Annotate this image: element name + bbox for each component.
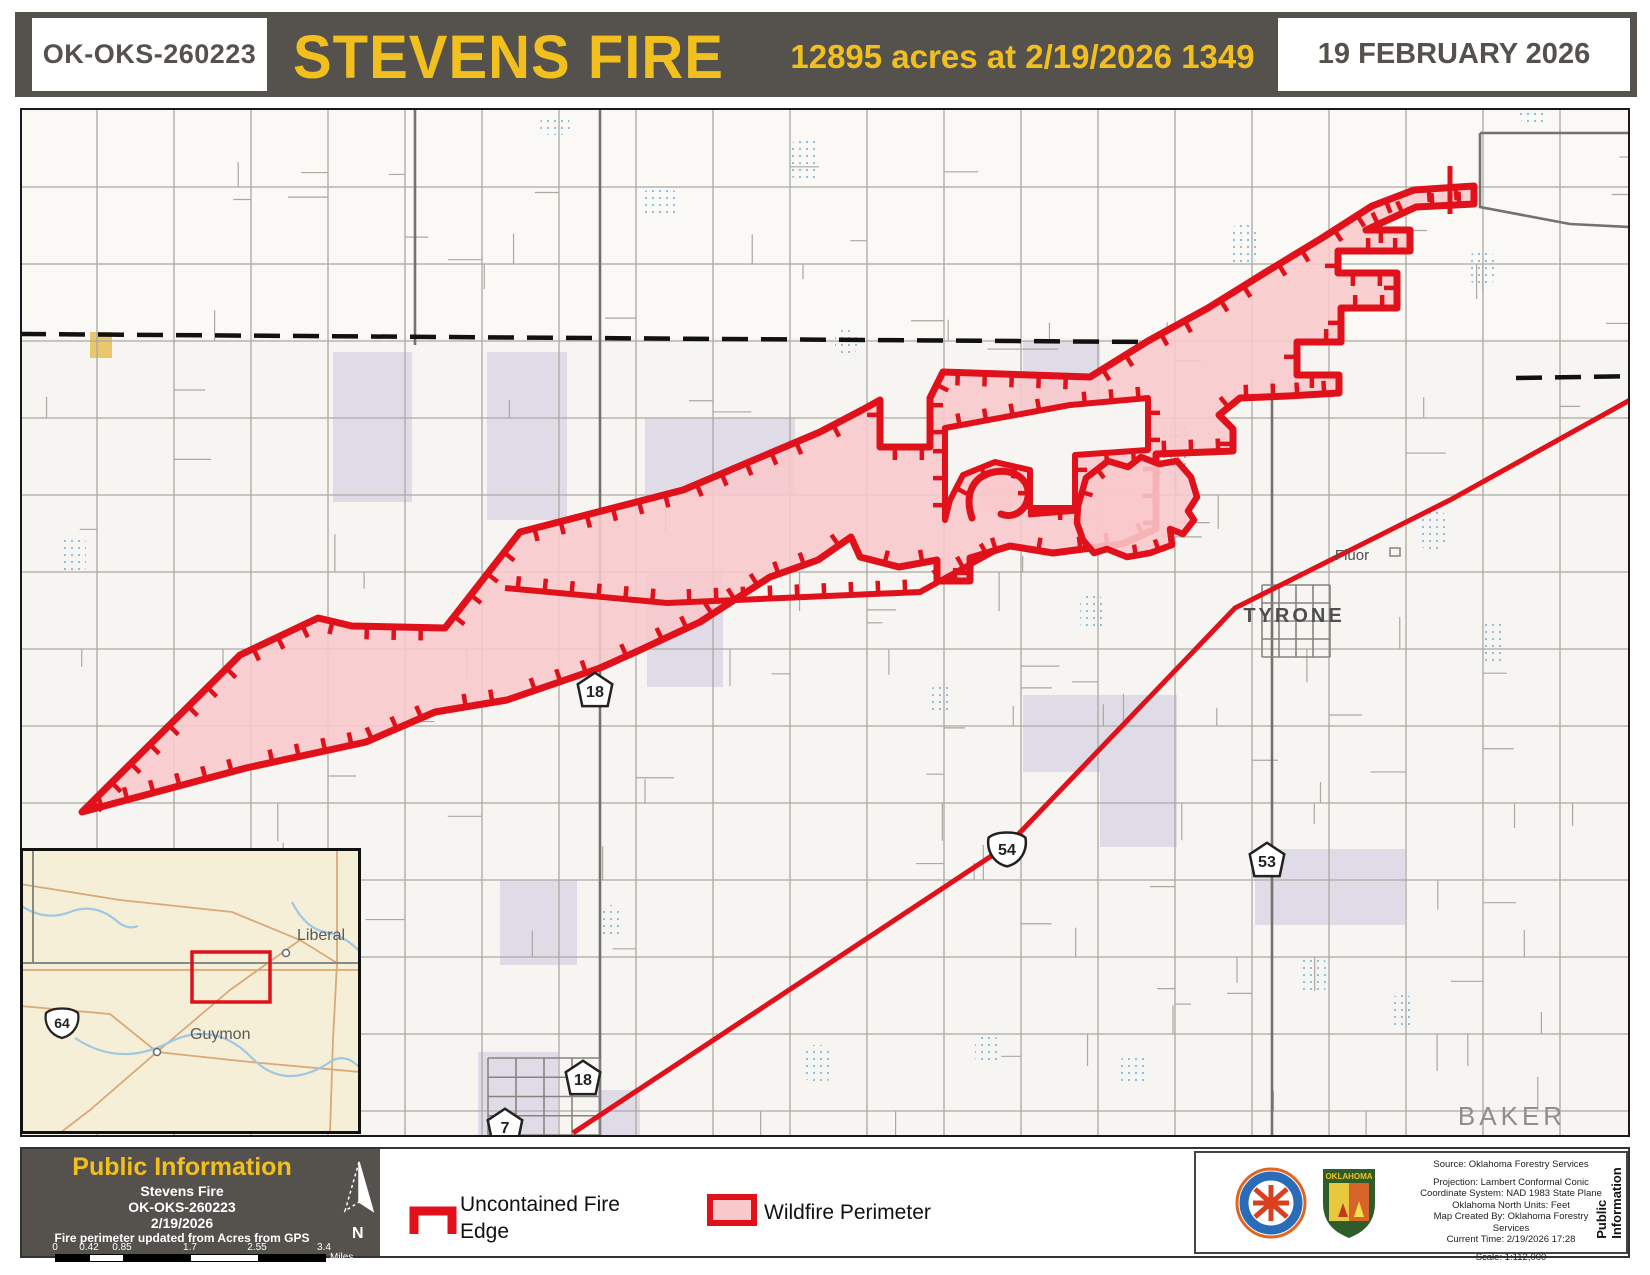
wildfire-perimeter-icon — [706, 1193, 758, 1227]
svg-text:OKLAHOMA: OKLAHOMA — [1325, 1172, 1372, 1181]
scale-segment — [56, 1255, 90, 1261]
inset-town-label: Liberal — [297, 927, 345, 944]
header-banner: OK-OKS-260223 STEVENS FIRE 12895 acres a… — [15, 12, 1637, 97]
inset-locator-map: LiberalGuymon64 — [20, 848, 361, 1134]
legend-item-perimeter: Wildfire Perimeter — [764, 1199, 931, 1226]
svg-text:7: 7 — [501, 1119, 510, 1135]
oklahoma-forestry-shield-icon: OKLAHOMA — [1323, 1169, 1375, 1238]
public-information-title: Public Information — [22, 1153, 342, 1182]
svg-text:TYRONE: TYRONE — [1243, 605, 1344, 627]
credits-line: Oklahoma North Units: Feet — [1416, 1200, 1606, 1212]
scale-segment — [191, 1255, 258, 1261]
public-information-vertical-label: Public Information — [1594, 1167, 1624, 1239]
svg-text:Fluor: Fluor — [1335, 547, 1369, 564]
fire-management-seal-icon — [1237, 1169, 1305, 1237]
inset-town-dot — [283, 950, 290, 957]
credits-panel: OKLAHOMA Source: Oklahoma Forestry Servi… — [1194, 1151, 1628, 1254]
scale-bar-units: Miles — [330, 1252, 353, 1263]
scale-label: 0 — [52, 1242, 58, 1253]
agency-logos: OKLAHOMA — [1226, 1159, 1386, 1249]
svg-text:53: 53 — [1258, 853, 1276, 871]
scale-segment — [123, 1255, 191, 1261]
wildfire-map-page: OK-OKS-260223 STEVENS FIRE 12895 acres a… — [0, 0, 1650, 1275]
north-arrow-label: N — [352, 1225, 364, 1243]
north-arrow-icon — [336, 1159, 382, 1229]
credits-line: Current Time: 2/19/2026 17:28 — [1416, 1234, 1606, 1246]
credits-text: Source: Oklahoma Forestry ServicesProjec… — [1416, 1159, 1606, 1263]
legend-bar: Public Information Stevens Fire OK-OKS-2… — [20, 1147, 1630, 1258]
scale-label: 3.4 — [317, 1242, 331, 1253]
legend-date: 2/19/2026 — [22, 1215, 342, 1231]
fire-hook-fill — [979, 476, 1017, 514]
map-date-box: 19 FEBRUARY 2026 — [1278, 18, 1630, 91]
svg-text:54: 54 — [998, 841, 1016, 859]
credits-line: Scale: 1:112,000 — [1416, 1252, 1606, 1264]
fire-connector — [1028, 510, 1078, 514]
inset-town-dot — [154, 1049, 161, 1056]
acres-status: 12895 acres at 2/19/2026 1349 — [770, 18, 1275, 96]
credits-line: Coordinate System: NAD 1983 State Plane — [1416, 1188, 1606, 1200]
legend-update-note: Fire perimeter updated from Acres from G… — [22, 1231, 342, 1245]
svg-text:18: 18 — [574, 1071, 592, 1089]
credits-line: Source: Oklahoma Forestry Services — [1416, 1159, 1606, 1171]
svg-text:BAKER: BAKER — [1458, 1101, 1566, 1131]
credits-line: Map Created By: Oklahoma Forestry Servic… — [1416, 1211, 1606, 1234]
credits-line: Projection: Lambert Conformal Conic — [1416, 1177, 1606, 1189]
incident-id-box: OK-OKS-260223 — [32, 18, 267, 91]
legend-info-panel: Public Information Stevens Fire OK-OKS-2… — [22, 1149, 380, 1256]
inset-canvas: LiberalGuymon64 — [23, 851, 358, 1131]
legend-fire-name: Stevens Fire — [22, 1183, 342, 1199]
map-date: 19 FEBRUARY 2026 — [1318, 38, 1590, 71]
scale-segment — [90, 1255, 123, 1261]
incident-id: OK-OKS-260223 — [43, 39, 257, 70]
scale-segment — [258, 1255, 325, 1261]
legend-incident-id: OK-OKS-260223 — [22, 1199, 342, 1215]
scale-bar — [55, 1254, 326, 1262]
fire-title: STEVENS FIRE — [293, 16, 724, 98]
scale-label: 0.85 — [112, 1242, 131, 1253]
scale-label: 1.7 — [183, 1242, 197, 1253]
svg-text:18: 18 — [586, 683, 604, 701]
scale-label: 0.42 — [79, 1242, 98, 1253]
scale-label: 2.55 — [247, 1242, 266, 1253]
svg-text:64: 64 — [54, 1015, 70, 1031]
inset-town-label: Guymon — [190, 1026, 250, 1043]
legend-item-uncontained: Uncontained Fire Edge — [460, 1191, 620, 1245]
